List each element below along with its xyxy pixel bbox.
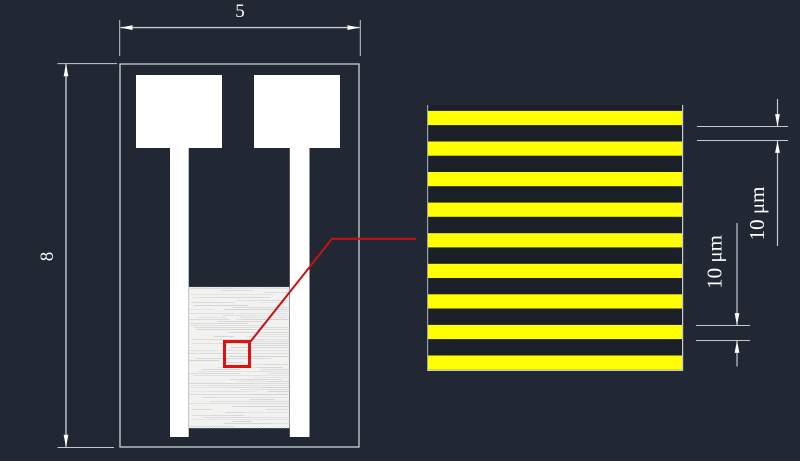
- svg-text:5: 5: [235, 1, 245, 22]
- svg-text:10 μm: 10 μm: [745, 187, 769, 241]
- svg-text:10 μm: 10 μm: [703, 235, 727, 289]
- svg-text:8: 8: [37, 252, 58, 262]
